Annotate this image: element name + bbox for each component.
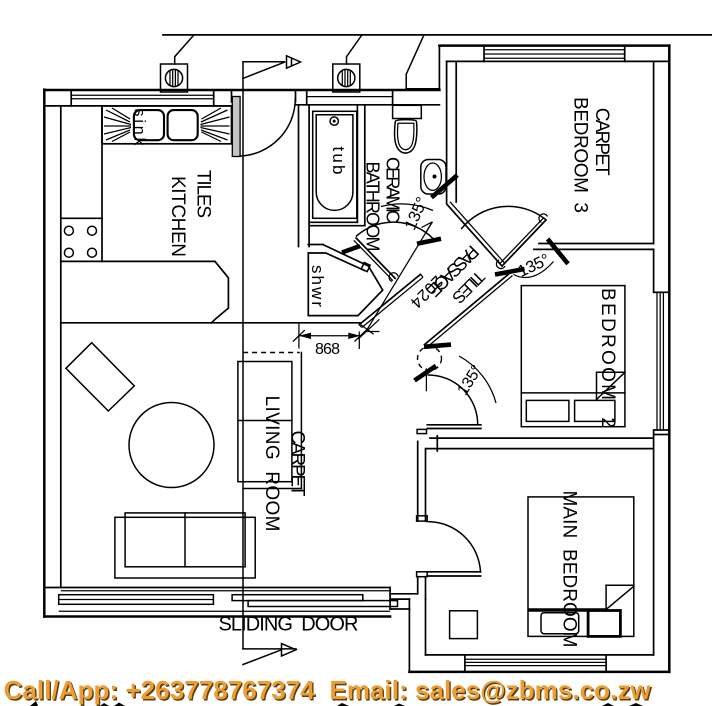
svg-text:KITCHEN: KITCHEN <box>167 176 188 257</box>
svg-text:sink: sink <box>131 109 148 147</box>
svg-text:CARPET: CARPET <box>591 108 612 176</box>
svg-text:868: 868 <box>315 341 340 358</box>
svg-text:CARPET: CARPET <box>287 431 308 497</box>
svg-text:BATHROOM: BATHROOM <box>363 162 383 252</box>
svg-text:CERAMIC: CERAMIC <box>383 157 403 223</box>
svg-text:SLIDING DOOR: SLIDING DOOR <box>219 614 359 636</box>
svg-text:shwr: shwr <box>308 265 327 307</box>
svg-text:MAIN BEDROOM: MAIN BEDROOM <box>559 491 580 648</box>
svg-text:LIVING ROOM: LIVING ROOM <box>261 396 282 532</box>
svg-text:BEDROOM 3: BEDROOM 3 <box>570 97 591 213</box>
svg-text:tub: tub <box>329 147 348 175</box>
svg-text:BEDROOM 2: BEDROOM 2 <box>597 288 618 428</box>
svg-text:Call/App: +263778767374 Email: Call/App: +263778767374 Email: sales@zbm… <box>4 675 652 705</box>
svg-text:TILES: TILES <box>193 170 214 218</box>
